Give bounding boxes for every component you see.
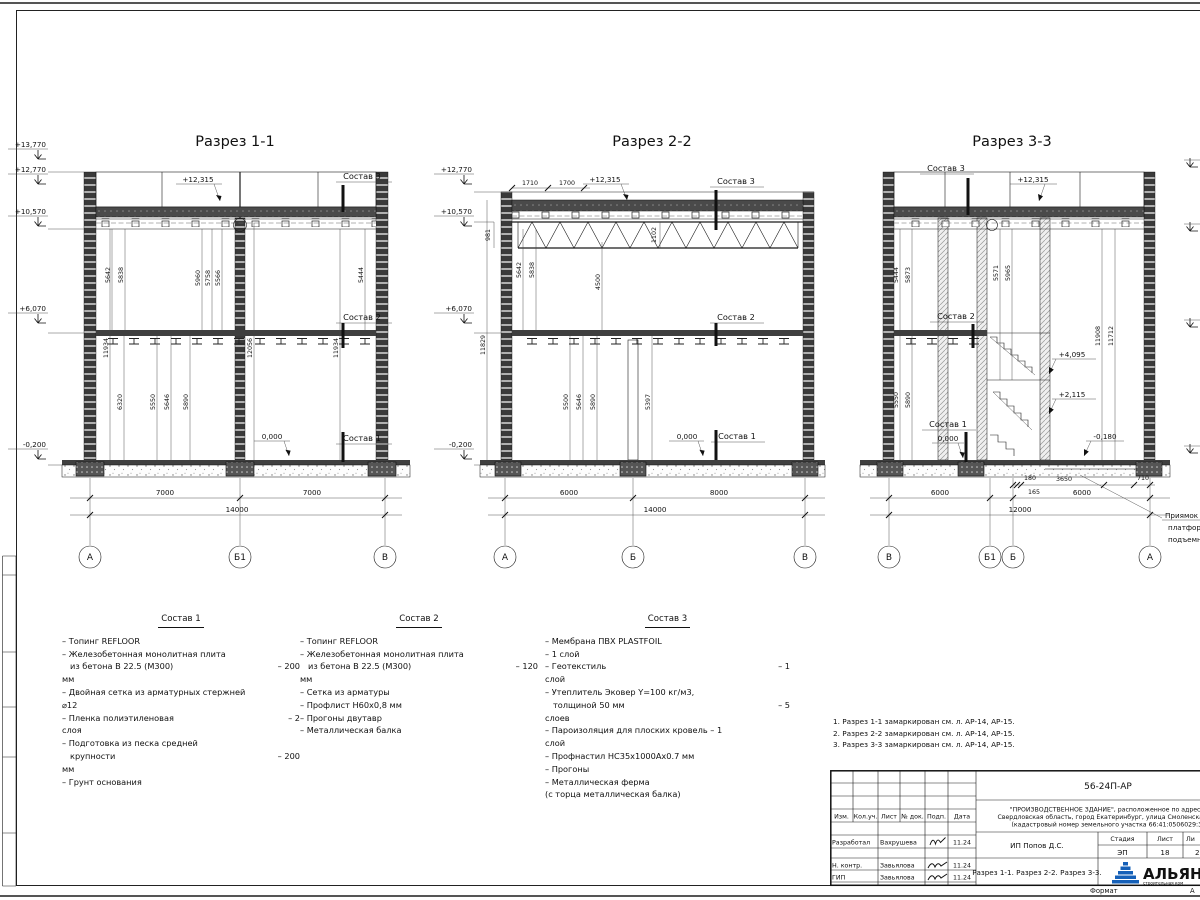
v-dim: 5890 [183, 394, 190, 410]
sostav-line: – Двойная сетка из арматурных стержней [62, 686, 300, 699]
sostav-line: мм [62, 763, 300, 776]
h-dim: 1710 [522, 180, 538, 187]
span-dim: 6000 [560, 488, 579, 497]
title-block: Изм. Кол.уч. Лист № док. Подп. Дата Разр… [830, 770, 1200, 886]
axis-bubble: А [1147, 553, 1154, 563]
sostav-line: слой [545, 737, 790, 750]
v-dim: 5397 [645, 394, 652, 410]
sostav-line: (с торца металлическая балка) [545, 788, 790, 801]
elevation-marks: +12,770 +10,570 +6,070 -0,200 [434, 165, 501, 465]
v-dim: 5642 [105, 267, 112, 283]
v-dim: 5550 [150, 394, 157, 410]
callout-line: платформ [1168, 523, 1200, 532]
elevation-label: -0,180 [1093, 432, 1117, 441]
sign-date: 11.24 [953, 840, 971, 847]
span-dim: 7000 [156, 488, 175, 497]
elevation-label: +4,095 [1059, 350, 1086, 359]
stage-value: ЭП [1117, 848, 1127, 857]
v-dim: 1102 [651, 227, 658, 243]
sostav-line: слоя [62, 724, 300, 737]
col-header: Кол.уч. [854, 814, 878, 821]
sostav2-label: Состав 2 [937, 311, 975, 321]
role-label: ГИП [832, 875, 846, 882]
section-title: Разрез 3-3 [972, 134, 1051, 150]
v-dim: 11908 [1095, 326, 1102, 346]
axis-bubble: В [886, 553, 892, 563]
axis-bubble: В [802, 553, 808, 563]
sostav-line: – Пленка полиэтиленовая– 2 [62, 712, 300, 725]
elevation-label: +12,315 [589, 175, 620, 184]
wall-right [1144, 172, 1155, 460]
note-line: 1. Разрез 1-1 замаркирован см. л. АР-14,… [833, 716, 1083, 728]
pit-callout: Приямок п платформ подъемни [1080, 475, 1200, 544]
roof-elevation: +12,315 [1010, 175, 1057, 201]
span-dim: 6000 [1073, 488, 1092, 497]
note-line: 2. Разрез 2-2 замаркирован см. л. АР-14,… [833, 728, 1083, 740]
format-label: Формат [1090, 887, 1118, 895]
wall-left [84, 172, 96, 460]
elevation-label: +13,770 [15, 140, 47, 149]
v-dim: 11934 [103, 338, 110, 358]
project-description: "ПРОИЗВОДСТВЕННОЕ ЗДАНИЕ", расположенное… [998, 807, 1200, 829]
v-dim: 5642 [516, 262, 523, 278]
bottom-dimensions: 6000 6000 12000 В Б1 Б А [870, 478, 1170, 568]
sostav-line: – Прогоны [545, 763, 790, 776]
sostav-line: – Металлическая ферма [545, 776, 790, 789]
role-label: Н. контр. [832, 863, 862, 870]
zero-elevation: 0,000 [677, 432, 698, 441]
sostav-line: – Профнастил НС35х1000Ах0.7 мм [545, 750, 790, 763]
v-dim: 5500 [563, 394, 570, 410]
wall-left [501, 192, 512, 460]
elevation-label: +2,115 [1059, 390, 1086, 399]
sostav-block-title: Состав 3 [545, 612, 790, 628]
sostav-block-title: Состав 2 [300, 612, 538, 628]
stage-header: Стадия [1110, 836, 1134, 843]
elevation-label: +6,070 [445, 304, 472, 313]
sostav2-label: Состав 2 [343, 312, 381, 322]
sostav-line: – Геотекстиль– 1 [545, 660, 790, 673]
sostav1-label: Состав 1 [343, 433, 381, 443]
sostav3-label: Состав 3 [927, 163, 965, 173]
h-dim: 1700 [559, 180, 575, 187]
col-header: Подп. [927, 814, 946, 821]
v-dim: 5873 [905, 267, 912, 283]
col-header: Изм. [834, 814, 849, 821]
ground-slab [860, 460, 1170, 477]
col-header: Дата [954, 814, 970, 821]
sostav-1-block: Состав 1 – Топинг REFLOOR – Железобетонн… [62, 612, 300, 788]
sostav-line: – Сетка из арматуры [300, 686, 538, 699]
axis-bubble: А [87, 553, 94, 563]
drawing-notes: 1. Разрез 1-1 замаркирован см. л. АР-14,… [833, 716, 1083, 751]
person-name: Вахрушева [880, 840, 917, 847]
v-dim: 11934 [333, 338, 340, 358]
sostav2-label: Состав 2 [717, 312, 755, 322]
col-header: № док. [900, 814, 924, 821]
sheet-border-bottom [0, 895, 1200, 897]
sheet-title: Разрез 1-1. Разрез 2-2. Разрез 3-3. [972, 868, 1102, 877]
v-dim: 6320 [117, 394, 124, 410]
sostav-line: слоев [545, 712, 790, 725]
person-name: Завьялова [880, 875, 915, 882]
elevation-label: +12,770 [15, 165, 47, 174]
section-2-2-drawing: Разрез 2-2 1710 1700 [440, 130, 840, 580]
axis-bubble: Б1 [984, 553, 996, 563]
v-dim: 5444 [893, 267, 900, 283]
wall-left [883, 172, 894, 460]
role-label: Разработал [832, 839, 870, 847]
v-dim: 12056 [247, 338, 254, 358]
section-1-1-drawing: Разрез 1-1 [0, 130, 450, 580]
sostav3-label: Состав 3 [343, 171, 381, 181]
sostav-line: толщиной 50 мм– 5 [545, 699, 790, 712]
bottom-dimensions: 7000 7000 14000 А Б1 В [70, 478, 402, 568]
roof-elevation: +12,315 [176, 175, 222, 201]
bottom-dimensions: 6000 8000 14000 А Б В [488, 478, 825, 568]
project-line: (кадастровый номер земельного участка 66… [1012, 821, 1200, 829]
sostav3-label: Состав 3 [717, 176, 755, 186]
elevation-marks: +13,770 +12,770 +10,570 +6,070 -0,200 [8, 140, 84, 465]
project-line: Свердловская область, город Екатеринбург… [998, 813, 1200, 821]
top-dimensions: 1710 1700 +12,315 [509, 175, 629, 200]
h-dim: 165 [1028, 489, 1040, 496]
elevation-label: +12,770 [441, 165, 473, 174]
h-dim: 710 [1137, 475, 1149, 482]
zero-elevation: 0,000 [938, 434, 959, 443]
format-value: А [1190, 887, 1195, 895]
sheet-number: 18 [1160, 848, 1170, 857]
sostav-line: – Топинг REFLOOR [300, 635, 538, 648]
sign-date: 11.24 [953, 863, 971, 870]
sostav-line: мм [62, 673, 300, 686]
sostav-line: – 1 слой [545, 648, 790, 661]
document-number: 56-24П-АР [1084, 782, 1132, 792]
span-dim: 6000 [931, 488, 950, 497]
client-name: ИП Попов Д.С. [1010, 841, 1064, 850]
axis-bubble: В [382, 553, 388, 563]
ground-slab [480, 460, 825, 477]
span-dim: 8000 [710, 488, 729, 497]
v-dim: 5838 [529, 262, 536, 278]
sostav-line: – Прогоны двутавр [300, 712, 538, 725]
sostav-line: – Пароизоляция для плоских кровель – 1 [545, 724, 790, 737]
right-edge-elevation-marks [1184, 158, 1200, 453]
drawing-sheet: Разрез 1-1 [0, 0, 1200, 900]
sostav-line: мм [300, 673, 538, 686]
sostav-line: – Профлист Н60х0,8 мм [300, 699, 538, 712]
sostav-line: – Металлическая балка [300, 724, 538, 737]
v-dim: 5960 [195, 270, 202, 286]
sostav-line: – Грунт основания [62, 776, 300, 789]
callout-line: Приямок п [1165, 511, 1200, 520]
sostav-line: – Железобетонная монолитная плита [62, 648, 300, 661]
total-dim: 12000 [1009, 505, 1032, 514]
sostav-line: из бетона В 22.5 (М300)– 200 [62, 660, 300, 673]
person-name: Завьялова [880, 863, 915, 870]
sostav1-label: Состав 1 [929, 419, 967, 429]
elevation-label: +6,070 [19, 304, 46, 313]
span-dim: 7000 [303, 488, 322, 497]
section-title: Разрез 2-2 [612, 134, 691, 150]
sostav-line: крупности– 200 [62, 750, 300, 763]
v-dim: 5965 [1005, 265, 1012, 281]
sostav-line: слой [545, 673, 790, 686]
col-header: Лист [881, 814, 897, 821]
elevation-label: -0,200 [23, 440, 47, 449]
sostav-line: ⌀12 [62, 699, 300, 712]
v-dim: 5758 [205, 270, 212, 286]
sostav-line: из бетона В 22.5 (М300)– 120 [300, 660, 538, 673]
total-dim: 14000 [226, 505, 249, 514]
v-dim: 5890 [590, 394, 597, 410]
axis-bubble: Б [1010, 553, 1016, 563]
sostav-line: – Железобетонная монолитная плита [300, 648, 538, 661]
sostav-block-title: Состав 1 [62, 612, 300, 628]
sostav-line: – Утеплитель Эковер Y=100 кг/м3, [545, 686, 790, 699]
h-dim: 180 [1024, 475, 1036, 482]
section-title: Разрез 1-1 [195, 134, 274, 150]
interior-elevations: +4,095 +2,115 -0,180 [1049, 350, 1124, 456]
sheets-header: Ли [1186, 836, 1195, 843]
sostav-2-block: Состав 2 – Топинг REFLOOR – Железобетонн… [300, 612, 538, 737]
elevation-label: -0,200 [449, 440, 473, 449]
logo-subtext: строительная ком [1143, 881, 1183, 886]
elevation-label: +12,315 [1017, 175, 1048, 184]
v-dim: 5646 [164, 394, 171, 410]
v-dim: 5550 [893, 392, 900, 408]
axis-bubble: А [502, 553, 509, 563]
callout-line: подъемни [1168, 535, 1200, 544]
filing-margin-boxes [2, 556, 17, 888]
sheet-border-top [0, 2, 1200, 4]
axis-bubble: Б [630, 553, 636, 563]
sheets-total: 2 [1195, 848, 1200, 857]
project-line: "ПРОИЗВОДСТВЕННОЕ ЗДАНИЕ", расположенное… [1010, 807, 1200, 814]
v-dim: 5571 [993, 265, 1000, 281]
v-dim: 5890 [905, 392, 912, 408]
v-dim: 11712 [1108, 326, 1115, 346]
v-dim: 5646 [576, 394, 583, 410]
v-dim: 5444 [358, 267, 365, 283]
elevation-label: +10,570 [15, 207, 47, 216]
sostav-line: – Мембрана ПВХ PLASTFOIL [545, 635, 790, 648]
sostav1-label: Состав 1 [718, 431, 756, 441]
sostav-line: – Подготовка из песка средней [62, 737, 300, 750]
elevation-label: +12,315 [182, 175, 213, 184]
v-dim: 11829 [480, 335, 487, 355]
total-dim: 14000 [644, 505, 667, 514]
v-dim: 5838 [118, 267, 125, 283]
column-interior [1040, 218, 1050, 460]
wall-right [803, 192, 814, 460]
h-dim: 3650 [1056, 476, 1072, 483]
sostav-3-block: Состав 3 – Мембрана ПВХ PLASTFOIL – 1 сл… [545, 612, 790, 801]
v-dim: 4500 [595, 274, 602, 290]
sheet-header: Лист [1157, 836, 1173, 843]
elevation-label: +10,570 [441, 207, 473, 216]
ground-slab [62, 460, 410, 477]
v-dim: 5566 [215, 270, 222, 286]
sostav-line: – Топинг REFLOOR [62, 635, 300, 648]
zero-elevation: 0,000 [262, 432, 283, 441]
sign-date: 11.24 [953, 875, 971, 882]
floor-slab [512, 330, 803, 460]
note-line: 3. Разрез 3-3 замаркирован см. л. АР-14,… [833, 739, 1083, 751]
v-dim: 981 [485, 229, 492, 241]
section-3-3-drawing: Разрез 3-3 [840, 130, 1200, 590]
axis-bubble: Б1 [234, 553, 246, 563]
roof-parapet [96, 172, 376, 232]
